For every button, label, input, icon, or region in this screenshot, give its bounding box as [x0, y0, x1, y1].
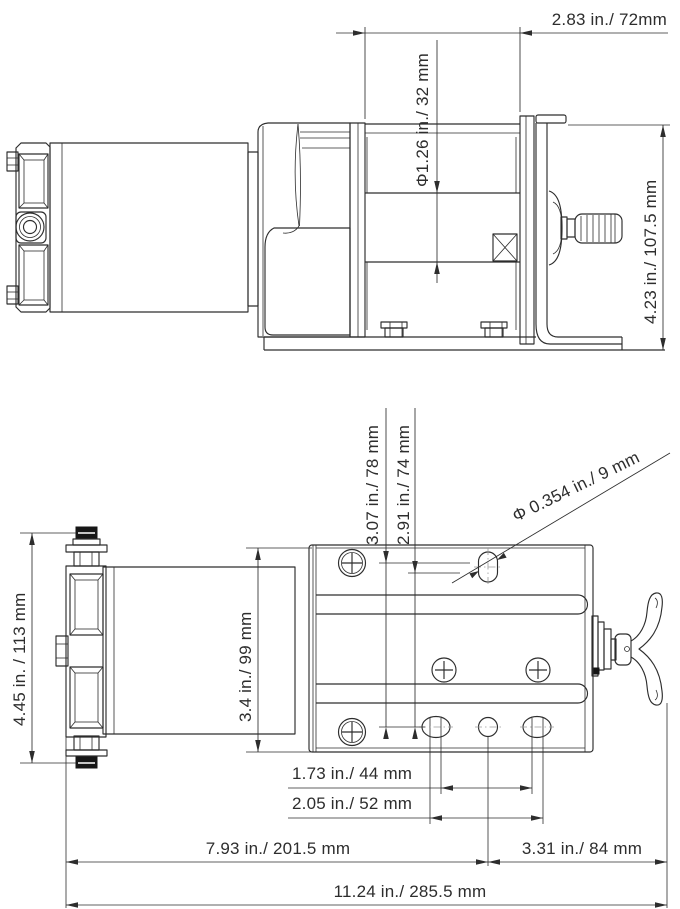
- clutch-handle: [592, 593, 662, 705]
- dim-hole-diameter: Φ 0.354 in./ 9 mm: [452, 448, 670, 583]
- dim-length-right-label: 3.31 in./ 84 mm: [522, 839, 642, 858]
- dim-drum-length: 2.83 in./ 72mm: [336, 10, 668, 119]
- drawing-canvas: 2.83 in./ 72mm Φ1.26 in./ 32 mm 4.23 in.…: [0, 0, 680, 909]
- gear-housing: [258, 123, 350, 337]
- dim-hole-offset-inner-label: 2.91 in./ 74 mm: [394, 425, 413, 545]
- motor-end-cap: [16, 143, 50, 312]
- cap-rib-upper: [70, 574, 103, 635]
- dim-hole-diameter-label: Φ 0.354 in./ 9 mm: [509, 448, 642, 526]
- plate-screw-center-right: [526, 658, 550, 682]
- dim-length-left: 7.93 in./ 201.5 mm: [66, 666, 488, 908]
- cable-anchor: [493, 234, 517, 261]
- mount-hole-center: [475, 718, 501, 867]
- dim-hole-offset-outer-label: 3.07 in./ 78 mm: [363, 425, 382, 545]
- motor-body-plan: [103, 567, 295, 734]
- motor-end-cap-plan: [56, 566, 106, 737]
- bracket-foot-left: [381, 322, 407, 337]
- dim-drum-diameter: Φ1.26 in./ 32 mm: [413, 40, 440, 283]
- dim-slot-outer: 2.05 in./ 52 mm: [288, 794, 543, 821]
- dim-overall-height-label: 4.23 in./ 107.5 mm: [641, 180, 660, 324]
- drum-flange-right: [520, 116, 534, 344]
- plate-screw-center-left: [432, 658, 456, 682]
- clutch-housing: [549, 191, 567, 265]
- dim-length-right: 3.31 in./ 84 mm: [488, 703, 667, 908]
- dim-slot-inner: 1.73 in./ 44 mm: [288, 764, 532, 791]
- winch-dimension-drawing: 2.83 in./ 72mm Φ1.26 in./ 32 mm 4.23 in.…: [0, 0, 680, 909]
- dim-drum-length-label: 2.83 in./ 72mm: [552, 10, 667, 29]
- dim-slot-outer-label: 2.05 in./ 52 mm: [292, 794, 412, 813]
- clutch-knob: [575, 214, 622, 243]
- drum-cover: [265, 228, 350, 335]
- drum: [365, 124, 520, 330]
- drum-rail-upper: [316, 595, 587, 614]
- plate-screw-top-left: [339, 550, 366, 577]
- drum-rail-lower: [316, 684, 588, 703]
- side-view: 2.83 in./ 72mm Φ1.26 in./ 32 mm 4.23 in.…: [7, 10, 670, 350]
- brush-window-upper: [19, 154, 48, 208]
- bracket-foot-right: [481, 322, 507, 337]
- plan-view: 4.45 in. / 113 mm 3.4 in./ 99 mm 3.07 in…: [10, 408, 670, 908]
- plate-screw-bottom-left: [339, 719, 366, 746]
- dim-overall-length: 11.24 in./ 285.5 mm: [66, 882, 667, 908]
- clutch-shaft: [567, 219, 575, 237]
- dim-motor-height-label: 4.45 in. / 113 mm: [10, 593, 29, 726]
- dim-body-width: 3.4 in./ 99 mm: [236, 548, 312, 752]
- dim-hole-offset-inner: 2.91 in./ 74 mm: [379, 408, 460, 739]
- dim-hole-offset-outer: 3.07 in./ 78 mm: [363, 408, 470, 739]
- dim-length-left-label: 7.93 in./ 201.5 mm: [206, 839, 350, 858]
- dim-body-width-label: 3.4 in./ 99 mm: [236, 611, 255, 722]
- cap-rib-lower: [70, 667, 103, 728]
- dim-overall-height: 4.23 in./ 107.5 mm: [568, 125, 670, 350]
- motor-body: [50, 143, 258, 312]
- dim-slot-inner-label: 1.73 in./ 44 mm: [292, 764, 412, 783]
- dim-drum-diameter-label: Φ1.26 in./ 32 mm: [413, 53, 432, 187]
- dim-overall-length-label: 11.24 in./ 285.5 mm: [334, 882, 487, 901]
- drum-flange-left: [350, 123, 365, 337]
- brush-window-lower: [19, 245, 48, 305]
- mount-slot-right: [520, 717, 554, 825]
- bearing-boss: [16, 212, 46, 243]
- mount-slot-left: [419, 717, 453, 825]
